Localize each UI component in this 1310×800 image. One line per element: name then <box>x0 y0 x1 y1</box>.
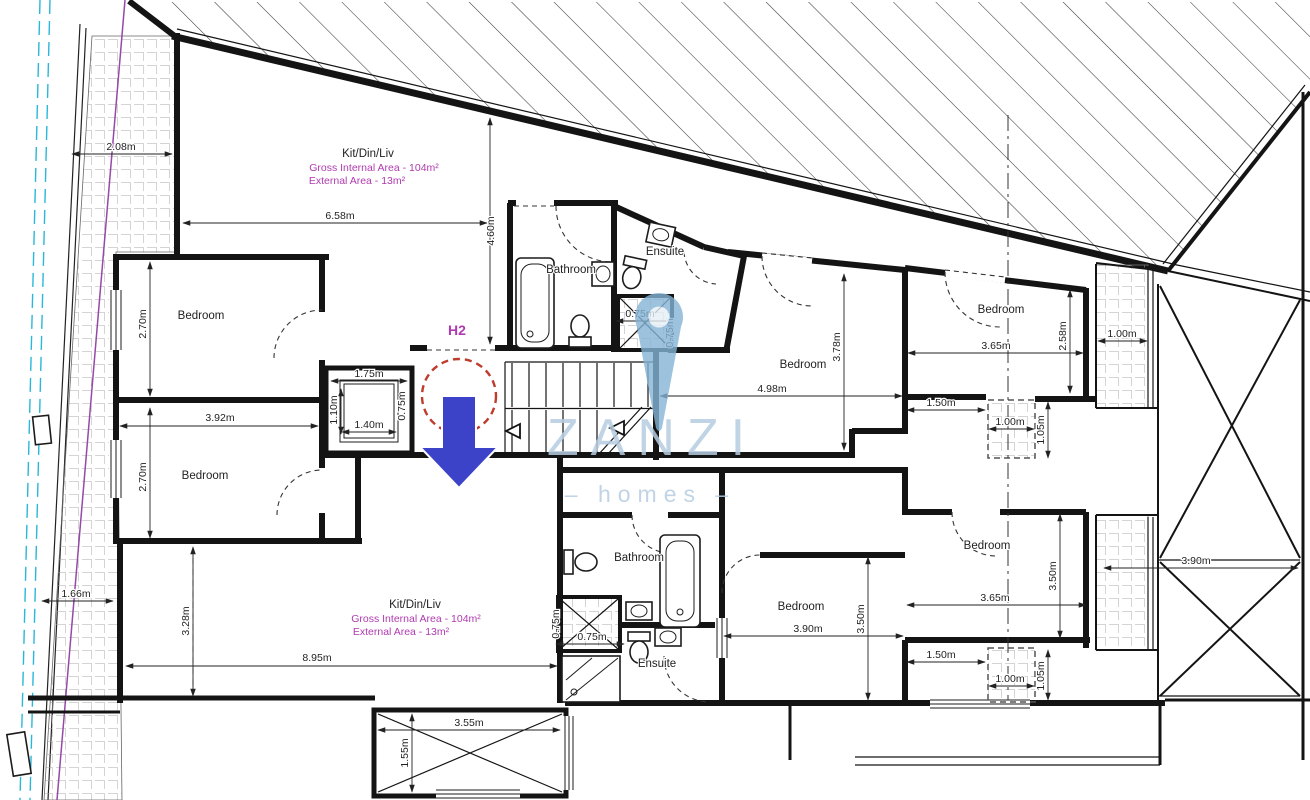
room-bedroom-left-1: Bedroom <box>178 310 225 322</box>
watermark-tagline: – homes – <box>565 481 735 507</box>
dim-2-70-a: 2.70m <box>137 309 149 338</box>
dim-8-95: 8.95m <box>302 652 331 664</box>
dim-3-65-tr: 3.65m <box>981 340 1010 352</box>
dim-1-00-low: 1.00m <box>995 673 1024 685</box>
dim-2-70-b: 2.70m <box>137 462 149 491</box>
dim-3-65-br: 3.65m <box>980 592 1009 604</box>
dim-1-05-low: 1.05m <box>1035 661 1047 690</box>
toilet <box>571 315 589 337</box>
room-bedroom-mid-upper: Bedroom <box>780 359 827 371</box>
room-bedroom-left-2: Bedroom <box>182 470 229 482</box>
toilet <box>575 553 597 571</box>
dim-4-98: 4.98m <box>757 383 786 395</box>
dim-0-75-low-v: 0.75m <box>550 609 562 638</box>
dim-3-90-bm: 3.90m <box>793 623 822 635</box>
area-gross-lower: Gross Internal Area - 104m² <box>351 613 481 625</box>
dim-2-08: 2.08m <box>106 141 135 153</box>
dim-3-28: 3.28m <box>180 606 192 635</box>
watermark-brand: ZANZI <box>547 409 757 467</box>
dim-1-66: 1.66m <box>61 588 90 600</box>
dim-0-75-lift: 0.75m <box>396 391 408 420</box>
room-bathroom-upper: Bathroom <box>546 264 596 276</box>
area-external-upper: External Area - 13m² <box>309 175 406 187</box>
stair-direction-arrow <box>506 424 520 438</box>
unit-label-h2: H2 <box>448 322 466 338</box>
room-bathroom-lower: Bathroom <box>614 552 664 564</box>
room-ensuite-lower: Ensuite <box>638 658 676 670</box>
dim-3-55: 3.55m <box>454 717 483 729</box>
area-gross-upper: Gross Internal Area - 104m² <box>309 162 439 174</box>
dim-1-50-low: 1.50m <box>926 649 955 661</box>
floor-plan-canvas: 2.08m 6.58m 4.60m 3.92m 2.70m 2.70m 1.75… <box>0 0 1310 800</box>
dim-1-55: 1.55m <box>399 738 411 767</box>
room-kitdinliv-upper: Kit/Din/Liv <box>342 148 394 160</box>
dim-6-58: 6.58m <box>325 210 354 222</box>
dim-4-60: 4.60m <box>485 216 497 245</box>
dim-1-00-mid: 1.00m <box>995 416 1024 428</box>
dim-1-00-tr: 1.00m <box>1107 328 1136 340</box>
dim-1-50-up: 1.50m <box>926 397 955 409</box>
dim-1-75: 1.75m <box>354 368 383 380</box>
sink <box>646 222 676 247</box>
room-bedroom-right-upper: Bedroom <box>978 304 1025 316</box>
dim-2-58: 2.58m <box>1057 321 1069 350</box>
dim-3-50-bm: 3.50m <box>855 604 867 633</box>
dim-0-75-low-h: 0.75m <box>577 631 606 643</box>
dim-1-40: 1.40m <box>354 419 383 431</box>
dim-3-78: 3.78m <box>831 332 843 361</box>
dim-3-92: 3.92m <box>205 412 234 424</box>
room-kitdinliv-lower: Kit/Din/Liv <box>389 599 441 611</box>
selected-unit-marker <box>420 359 498 488</box>
dim-1-05-mid: 1.05m <box>1035 415 1047 444</box>
location-arrow-icon <box>420 396 498 488</box>
room-ensuite-upper: Ensuite <box>646 246 684 258</box>
dim-3-90-right: 3.90m <box>1181 555 1210 567</box>
room-bedroom-mid-lower: Bedroom <box>778 601 825 613</box>
dim-3-50-br: 3.50m <box>1047 561 1059 590</box>
room-bedroom-right-lower: Bedroom <box>964 540 1011 552</box>
balcony-bottom-right <box>1096 515 1157 650</box>
dim-1-10: 1.10m <box>328 395 340 424</box>
area-external-lower: External Area - 13m² <box>353 626 450 638</box>
